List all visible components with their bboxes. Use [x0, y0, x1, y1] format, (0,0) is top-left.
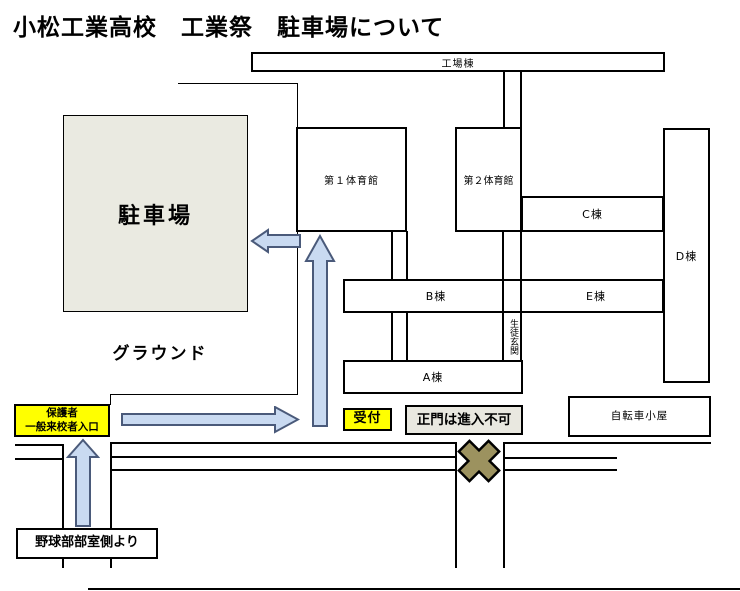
main-gate-notice-label: 正門は進入不可 — [417, 412, 512, 429]
route-arrow-left-shape — [252, 230, 300, 252]
route-arrow-up-short-shape — [68, 440, 98, 526]
baseball-route-sign: 野球部部室側より — [16, 528, 158, 559]
fence-line-stub — [110, 394, 111, 405]
parking-area-label: 駐車場 — [118, 198, 193, 230]
building-a: A棟 — [343, 360, 523, 394]
building-factory: 工場棟 — [251, 52, 665, 72]
building-gym1: 第１体育館 — [296, 127, 407, 232]
route-arrow-left-icon — [250, 228, 302, 254]
road-west-top — [15, 444, 62, 446]
road-mid-lower — [110, 469, 455, 471]
building-c-label: C棟 — [582, 206, 603, 222]
route-arrow-right-shape — [122, 407, 298, 432]
page-title: 小松工業高校 工業祭 駐車場について — [13, 8, 444, 42]
visitor-entrance-sign: 保護者 一般来校者入口 — [14, 404, 110, 437]
reception-sign-label: 受付 — [353, 411, 381, 427]
corridor-gym1-be-left — [391, 231, 393, 280]
building-a-label: A棟 — [423, 369, 444, 385]
visitor-entrance-line2: 一般来校者入口 — [25, 421, 99, 434]
building-c: C棟 — [521, 196, 664, 232]
road-east-bottom — [503, 457, 617, 459]
road-east-top — [503, 442, 711, 444]
route-arrow-right-icon — [120, 406, 300, 434]
corridor-c-be-right — [520, 231, 522, 280]
building-gym2: 第２体育館 — [455, 127, 522, 232]
corridor-through-bar-left — [502, 280, 504, 312]
student-entrance-label: 生徒玄関 — [503, 313, 522, 361]
visitor-entrance-line1: 保護者 — [46, 407, 78, 420]
road-mid-top — [110, 442, 457, 444]
bottom-border-line — [88, 588, 740, 590]
corridor-through-bar-right — [520, 280, 522, 312]
road-west-bottom — [15, 458, 62, 460]
road-gate-right — [503, 442, 505, 568]
corridor-be-a-left — [391, 312, 393, 362]
building-e-label: E棟 — [571, 281, 621, 311]
route-arrow-up-long-icon — [304, 234, 336, 428]
building-gym2-label: 第２体育館 — [464, 172, 514, 187]
parking-area: 駐車場 — [63, 115, 248, 312]
main-gate-notice-sign: 正門は進入不可 — [405, 405, 523, 435]
corridor-gym1-be-right — [406, 231, 408, 280]
fence-line-top — [178, 83, 298, 84]
no-entry-x-icon — [456, 438, 502, 484]
route-arrow-up-long-shape — [306, 236, 334, 426]
road-mid-bottom — [110, 456, 457, 458]
corridor-factory-gym2-left — [503, 72, 505, 128]
ground-label: グラウンド — [100, 339, 220, 364]
reception-sign: 受付 — [343, 408, 392, 431]
no-entry-x-shape — [456, 438, 502, 484]
corridor-c-be-left — [502, 231, 504, 280]
building-factory-label: 工場棟 — [442, 55, 475, 70]
building-d-label: D棟 — [676, 248, 697, 264]
corridor-factory-gym2-right — [520, 72, 522, 128]
baseball-route-label: 野球部部室側より — [35, 535, 139, 551]
building-d: D棟 — [663, 128, 710, 383]
corridor-be-a-right — [406, 312, 408, 362]
building-gym1-label: 第１体育館 — [324, 172, 379, 187]
bike-shed-label: 自転車小屋 — [611, 410, 669, 423]
route-arrow-up-short-icon — [66, 438, 100, 528]
bike-shed: 自転車小屋 — [568, 396, 711, 437]
building-b-label: B棟 — [411, 281, 461, 311]
fence-line-lower — [110, 394, 298, 395]
map-canvas: 小松工業高校 工業祭 駐車場について 工場棟 第１体育館 第２体育館 C棟 D棟… — [0, 0, 740, 591]
road-east-lower — [503, 469, 617, 471]
